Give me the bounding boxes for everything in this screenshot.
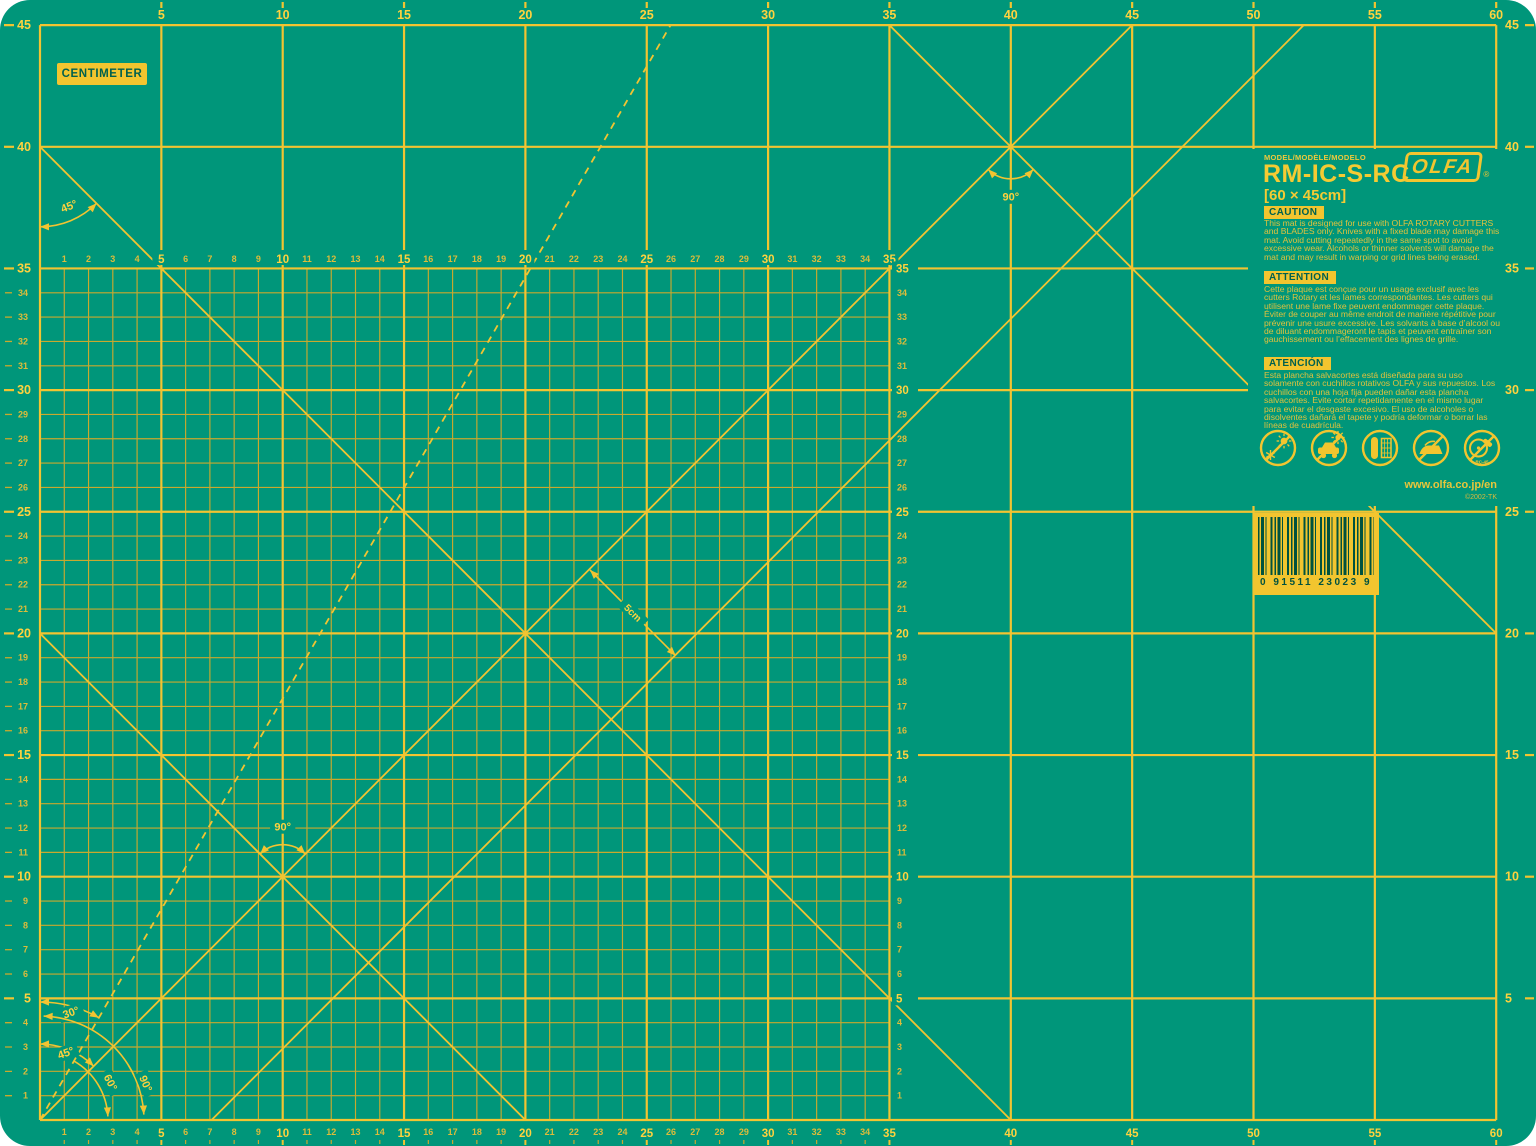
left-scale-number: 35 [17,261,31,275]
arrowhead-icon [1025,169,1034,178]
bottom-scale-number: 60 [1490,1128,1503,1140]
inner-right-number: 10 [896,872,909,884]
inner-top-number: 9 [256,254,261,264]
store-flat-icon [1360,428,1400,468]
inner-top-number: 10 [276,254,289,266]
no-car-heat-icon [1309,428,1349,468]
inner-top-number: 19 [496,254,506,264]
inner-right-number: 11 [897,847,907,857]
bottom-scale-number: 35 [883,1128,896,1140]
inner-right-number: 18 [897,677,907,687]
svg-text:RC-45: RC-45 [1475,460,1489,465]
left-scale-number: 6 [23,969,28,979]
no-iron-icon [1411,428,1451,468]
inner-top-number: 2 [86,254,91,264]
unit-label-box: CENTIMETER [57,63,147,85]
inner-top-number: 8 [232,254,237,264]
inner-top-number: 21 [545,254,555,264]
barcode-bars [1258,517,1374,575]
bottom-scale-number: 45 [1126,1128,1139,1140]
left-scale-number: 13 [18,799,28,809]
inner-top-number: 20 [519,254,532,266]
inner-right-number: 1 [897,1091,902,1101]
inner-right-number: 28 [897,434,907,444]
top-scale-number: 45 [1125,8,1139,22]
model-number: RM-IC-S-RC [1263,160,1410,189]
bottom-scale-number: 34 [860,1127,870,1137]
inner-right-number: 19 [897,653,907,663]
top-scale-number: 10 [276,8,290,22]
bottom-scale-number: 26 [666,1127,676,1137]
bottom-scale-number: 30 [762,1128,775,1140]
right-scale-number: 5 [1505,991,1512,1005]
left-scale-number: 14 [18,774,28,784]
bottom-scale-number: 55 [1368,1128,1381,1140]
bottom-scale-number: 21 [545,1127,555,1137]
inner-right-number: 35 [896,263,909,275]
svg-text:90°: 90° [1002,192,1019,204]
inner-top-number: 33 [836,254,846,264]
barcode-digits: 0 91511 23023 9 [1253,577,1379,588]
left-scale-number: 15 [17,748,31,762]
left-scale-number: 12 [18,823,28,833]
right-scale-number: 35 [1505,261,1519,275]
bottom-scale-number: 20 [519,1128,532,1140]
top-scale-number: 25 [640,8,654,22]
left-scale-number: 31 [18,361,28,371]
bottom-scale-number: 29 [739,1127,749,1137]
right-scale-number: 20 [1505,626,1519,640]
inner-right-number: 15 [896,750,909,762]
bottom-scale-number: 50 [1247,1128,1260,1140]
inner-top-number: 25 [640,254,653,266]
inner-top-number: 32 [812,254,822,264]
inner-right-number: 21 [897,604,907,614]
no-sun-frost-icon [1258,428,1298,468]
bottom-scale-number: 3 [110,1127,115,1137]
top-scale-number: 55 [1368,8,1382,22]
left-scale-number: 16 [18,726,28,736]
angle-label: 90° [998,190,1023,204]
inner-top-number: 7 [207,254,212,264]
info-panel: MODEL/MODÈLE/MODELO RM-IC-S-RC [60 × 45c… [1248,149,1503,506]
left-scale-number: 11 [18,847,28,857]
angle-label: 45° [55,195,84,217]
right-scale-number: 25 [1505,505,1519,519]
arrowhead-icon [89,1010,99,1018]
inner-top-number: 13 [351,254,361,264]
inner-top-number: 30 [762,254,775,266]
top-scale-number: 50 [1247,8,1261,22]
inner-top-number: 16 [423,254,433,264]
left-scale-number: 26 [18,482,28,492]
inner-top-number: 15 [398,254,411,266]
bottom-scale-number: 11 [302,1127,312,1137]
inner-right-number: 33 [897,312,907,322]
left-scale-number: 18 [18,677,28,687]
inner-right-number: 9 [897,896,902,906]
bottom-scale-number: 17 [448,1127,458,1137]
inner-top-number: 5 [158,254,165,266]
left-scale-number: 21 [18,604,28,614]
top-scale-number: 60 [1489,8,1503,22]
inner-right-number: 20 [896,628,909,640]
bottom-scale-number: 18 [472,1127,482,1137]
left-scale-number: 5 [24,991,31,1005]
left-scale-number: 24 [18,531,28,541]
inner-top-number: 23 [593,254,603,264]
inner-top-number: 27 [690,254,700,264]
bottom-scale-number: 32 [812,1127,822,1137]
arrowhead-icon [40,998,49,1005]
bottom-scale-number: 6 [183,1127,188,1137]
inner-top-number: 17 [448,254,458,264]
bottom-scale-number: 8 [232,1127,237,1137]
left-scale-number: 7 [23,945,28,955]
left-scale-number: 34 [18,288,28,298]
inner-right-number: 25 [896,507,909,519]
inner-top-number: 3 [110,254,115,264]
top-scale-number: 15 [397,8,411,22]
caution-text: This mat is designed for use with OLFA R… [1264,219,1502,261]
inner-right-number: 6 [897,969,902,979]
right-scale-number: 15 [1505,748,1519,762]
inner-right-number: 27 [897,458,907,468]
bottom-scale-number: 40 [1004,1128,1017,1140]
bottom-scale-number: 1 [62,1127,67,1137]
left-scale-number: 19 [18,653,28,663]
inner-right-number: 26 [897,482,907,492]
inner-right-number: 32 [897,336,907,346]
top-scale-number: 20 [518,8,532,22]
left-scale-number: 4 [23,1018,28,1028]
olfa-logo: OLFA ® [1404,152,1489,180]
bottom-scale-number: 12 [326,1127,336,1137]
inner-top-number: 28 [715,254,725,264]
inner-right-number: 14 [897,774,907,784]
inner-top-number: 34 [860,254,870,264]
inner-top-number: 11 [302,254,312,264]
copyright: ©2002-TK [1465,494,1497,501]
right-scale-number: 30 [1505,383,1519,397]
inner-top-number: 26 [666,254,676,264]
left-scale-number: 29 [18,409,28,419]
inner-right-number: 5 [896,993,903,1005]
top-scale-number: 5 [158,8,165,22]
inner-right-number: 22 [897,580,907,590]
bottom-scale-number: 24 [617,1127,627,1137]
bottom-scale-number: 9 [256,1127,261,1137]
inner-right-number: 30 [896,385,909,397]
bottom-scale-number: 31 [787,1127,797,1137]
diagonal-45-main [40,25,1132,1120]
left-scale-number: 25 [17,505,31,519]
bottom-scale-number: 13 [351,1127,361,1137]
left-scale-number: 17 [18,701,28,711]
inner-right-number: 16 [897,726,907,736]
bottom-scale-number: 10 [276,1128,289,1140]
inner-right-number: 8 [897,920,902,930]
inner-top-number: 12 [326,254,336,264]
right-scale-number: 10 [1505,870,1519,884]
inner-top-number: 6 [183,254,188,264]
bottom-scale-number: 14 [375,1127,385,1137]
left-scale-number: 2 [23,1066,28,1076]
top-scale-number: 40 [1004,8,1018,22]
inner-right-number: 29 [897,409,907,419]
left-scale-number: 28 [18,434,28,444]
inner-top-number: 24 [617,254,627,264]
atencion-badge: ATENCIÓN [1264,357,1331,370]
inner-right-number: 4 [897,1018,902,1028]
right-scale-number: 45 [1505,18,1519,32]
arrowhead-icon [140,1105,147,1114]
inner-right-number: 2 [897,1066,902,1076]
bottom-scale-number: 25 [640,1128,653,1140]
mat-size: [60 × 45cm] [1264,187,1346,204]
right-scale-number: 40 [1505,140,1519,154]
bottom-scale-number: 7 [207,1127,212,1137]
top-scale-number: 30 [761,8,775,22]
inner-right-number: 34 [897,288,907,298]
arrowhead-icon [40,223,49,230]
inner-right-number: 31 [897,361,907,371]
inner-right-number: 24 [897,531,907,541]
bottom-scale-number: 28 [715,1127,725,1137]
bottom-scale-number: 22 [569,1127,579,1137]
left-scale-number: 23 [18,555,28,565]
care-icons-row: RC-45 [1258,428,1502,468]
left-scale-number: 20 [17,626,31,640]
inner-top-number: 1 [62,254,67,264]
left-scale-number: 8 [23,920,28,930]
attention-text: Cette plaque est conçue pour un usage ex… [1264,285,1502,344]
arrowhead-icon [104,1107,111,1116]
left-scale-number: 1 [23,1091,28,1101]
unit-label: CENTIMETER [62,68,143,80]
attention-badge: ATTENTION [1264,271,1336,284]
bottom-scale-number: 23 [593,1127,603,1137]
left-scale-number: 30 [17,383,31,397]
inner-top-number: 29 [739,254,749,264]
rotary-cutter-icon: RC-45 [1462,428,1502,468]
website-url: www.olfa.co.jp/en [1405,479,1498,491]
inner-right-number: 17 [897,701,907,711]
inner-top-number: 31 [787,254,797,264]
olfa-logo-text: OLFA [1402,152,1484,182]
left-scale-number: 3 [23,1042,28,1052]
left-scale-number: 45 [17,18,31,32]
inner-top-number: 22 [569,254,579,264]
barcode: 0 91511 23023 9 [1253,513,1379,595]
left-scale-number: 22 [18,580,28,590]
arrowhead-icon [988,169,997,178]
atencion-text: Esta plancha salvacortes está diseñada p… [1264,371,1502,430]
left-scale-number: 9 [23,896,28,906]
bottom-scale-number: 16 [423,1127,433,1137]
inner-right-number: 23 [897,555,907,565]
inner-top-number: 18 [472,254,482,264]
left-scale-number: 27 [18,458,28,468]
bottom-scale-number: 2 [86,1127,91,1137]
bottom-scale-number: 15 [398,1128,411,1140]
diagonal-45-offset [212,25,1304,1120]
left-scale-number: 40 [17,140,31,154]
angle-label: 90° [270,820,295,834]
cutting-mat: 45°90°90°30°45°60°90°5cm5101520253035404… [0,0,1536,1146]
svg-text:90°: 90° [274,822,291,834]
inner-right-number: 7 [897,945,902,955]
bottom-scale-number: 4 [135,1127,140,1137]
arrowhead-icon [44,1013,53,1020]
inner-top-number: 14 [375,254,385,264]
offset-arrow-label: 5cm [617,597,649,629]
inner-right-number: 12 [897,823,907,833]
left-scale-number: 33 [18,312,28,322]
bottom-scale-number: 27 [690,1127,700,1137]
inner-right-number: 3 [897,1042,902,1052]
bottom-scale-number: 33 [836,1127,846,1137]
bottom-scale-number: 19 [496,1127,506,1137]
inner-top-number: 4 [135,254,140,264]
left-scale-number: 10 [17,870,31,884]
bottom-scale-number: 5 [158,1128,165,1140]
inner-right-number: 13 [897,799,907,809]
registered-mark-icon: ® [1483,170,1489,179]
top-scale-number: 35 [882,8,896,22]
left-scale-number: 32 [18,336,28,346]
